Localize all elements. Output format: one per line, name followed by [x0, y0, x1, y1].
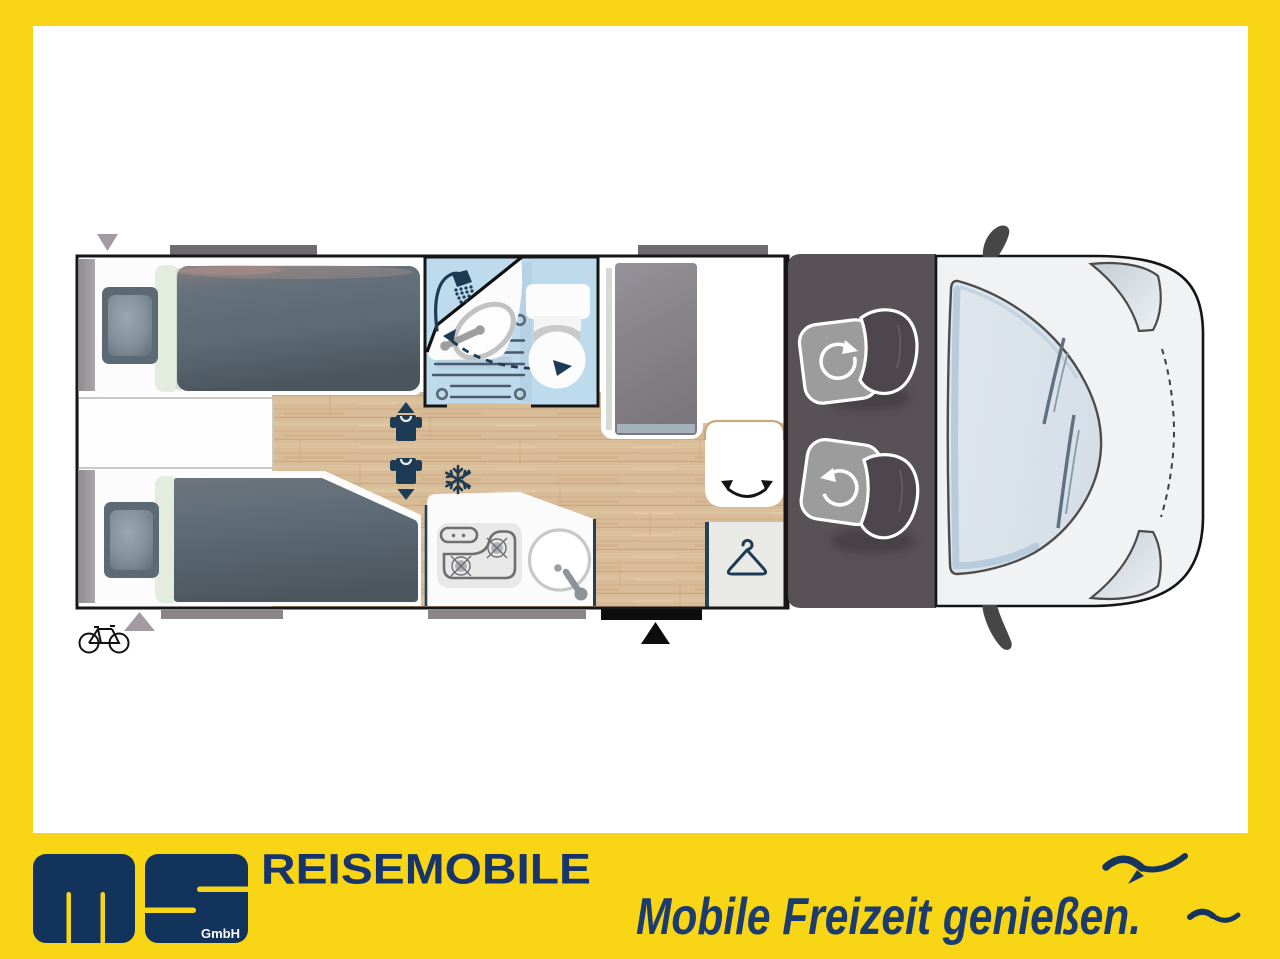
svg-text:REISEMOBILE: REISEMOBILE	[261, 846, 591, 894]
svg-text:Mobile Freizeit genießen.: Mobile Freizeit genießen.	[636, 888, 1141, 946]
svg-text:GmbH: GmbH	[201, 926, 240, 941]
